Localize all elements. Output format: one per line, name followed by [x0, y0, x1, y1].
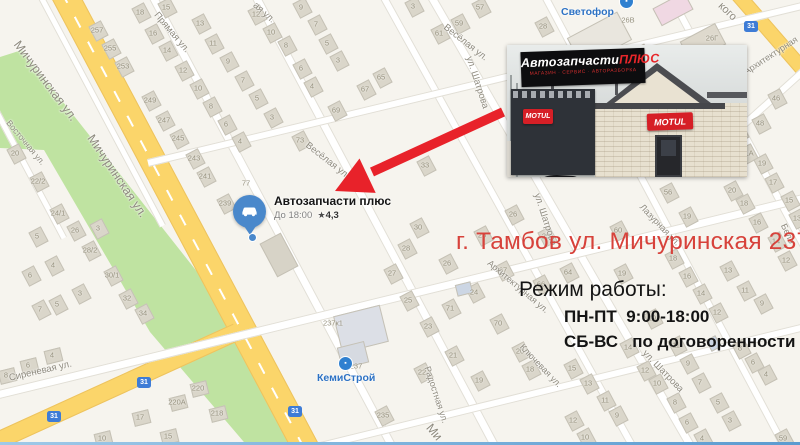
star-icon: ★ — [318, 210, 326, 220]
building-number: 8 — [673, 398, 677, 407]
building-number: 9 — [226, 57, 230, 66]
building-number: 12 — [641, 366, 649, 375]
photo-banner: MOTUL — [511, 89, 595, 175]
building-number: 15 — [164, 432, 172, 441]
building-number: 20 — [11, 149, 19, 158]
car-icon — [240, 202, 259, 221]
building-number: 46 — [772, 94, 780, 103]
poi-label[interactable]: Автозапчасти плюс До 18:00 ★4,3 — [274, 194, 391, 221]
motul-sign-wall: MOTUL — [647, 112, 694, 131]
building-number: 241 — [199, 172, 212, 181]
poi-rating: 4,3 — [326, 210, 339, 221]
building-number: 57 — [476, 3, 484, 12]
motul-logo-banner: MOTUL — [523, 109, 553, 124]
building-number: 24/1 — [51, 209, 66, 218]
poi-location-dot — [248, 233, 257, 242]
building-number: 20 — [728, 186, 736, 195]
building-number: 8 — [209, 102, 213, 111]
building-number: 3 — [270, 113, 274, 122]
building-number: 25 — [404, 296, 412, 305]
building-number: 17 — [136, 413, 144, 422]
road-shield: 31 — [137, 377, 151, 388]
building-number: 9 — [615, 411, 619, 420]
building-number: 12 — [179, 66, 187, 75]
building-number: 26Г — [706, 34, 718, 43]
building-number: 3 — [411, 2, 415, 11]
building-number: 65 — [377, 73, 385, 82]
building-number: 26 — [71, 226, 79, 235]
map-poi-label[interactable]: Светофор — [561, 6, 614, 18]
building-number: 21 — [449, 351, 457, 360]
building-number: 16 — [149, 29, 157, 38]
building-number: 6 — [224, 120, 228, 129]
building-number: 5 — [255, 94, 259, 103]
storefront-photo: АвтозапчастиПЛЮС МАГАЗИН · СЕРВИС · АВТО… — [507, 45, 747, 177]
building-number: 239 — [219, 199, 232, 208]
building-number: 220А — [168, 398, 186, 407]
building-number: 30 — [414, 223, 422, 232]
road-shield: 31 — [744, 21, 758, 32]
address-text: г. Тамбов ул. Мичуринская 237г. — [456, 228, 800, 256]
building-number: 13 — [724, 266, 732, 275]
building-number: 67 — [361, 85, 369, 94]
building-number: 237к1 — [323, 319, 343, 328]
building-number: 18 — [136, 8, 144, 17]
store-sign-title: АвтозапчастиПЛЮС — [521, 52, 645, 70]
building-number: 4 — [764, 370, 768, 379]
building-number: 8 — [4, 371, 8, 380]
building-number: 13 — [793, 214, 800, 223]
building-number: 24 — [470, 288, 478, 297]
building-number: 3 — [78, 289, 82, 298]
building-number: 10 — [267, 28, 275, 37]
building-number: 243 — [188, 154, 201, 163]
building-number: 22/2 — [31, 177, 46, 186]
building-number: 26 — [509, 210, 517, 219]
map-poi-label[interactable]: КемиСтрой — [317, 372, 375, 384]
building-number: 19 — [618, 269, 626, 278]
building-number: 245 — [172, 134, 185, 143]
building-number: 3 — [96, 224, 100, 233]
poi-hours: До 18:00 — [274, 210, 312, 221]
building-number: 28 — [402, 244, 410, 253]
black-car — [513, 167, 593, 177]
building-number: 33 — [421, 161, 429, 170]
door-pane — [661, 140, 676, 156]
poi-pin-circle — [233, 195, 266, 228]
building-number: 19 — [475, 376, 483, 385]
building-number: 5 — [325, 39, 329, 48]
building-number: 17 — [769, 178, 777, 187]
building-number: 26 — [443, 259, 451, 268]
building-number: 73 — [296, 136, 304, 145]
brand-logos-strip — [513, 91, 593, 98]
building-number: 7 — [38, 305, 42, 314]
building-number: 9 — [686, 359, 690, 368]
building-number: 6 — [28, 271, 32, 280]
building-number: 257 — [91, 26, 104, 35]
building-number: 19 — [758, 159, 766, 168]
building-number: 30/1 — [105, 271, 120, 280]
building-number: 4 — [51, 261, 55, 270]
schedule-weekend: СБ-ВС по договоренности — [564, 332, 795, 352]
building-number: 249 — [144, 96, 157, 105]
building-number: 32 — [123, 294, 131, 303]
building-number: 10 — [194, 84, 202, 93]
photo-door — [655, 135, 682, 177]
building-number: 7 — [698, 378, 702, 387]
building-number: 70 — [494, 319, 502, 328]
building-number: 12 — [782, 256, 790, 265]
building-number: 77 — [242, 179, 250, 188]
building-number: 4 — [310, 82, 314, 91]
store-sign: АвтозапчастиПЛЮС МАГАЗИН · СЕРВИС · АВТО… — [520, 48, 645, 87]
building-number: 23 — [424, 322, 432, 331]
building-number: 6 — [751, 358, 755, 367]
building-number: 13 — [196, 19, 204, 28]
building-number: 3 — [336, 56, 340, 65]
building-number: 28/2 — [83, 246, 98, 255]
building-number: 56 — [664, 188, 672, 197]
building-number: 7 — [241, 76, 245, 85]
building-number: 27 — [388, 269, 396, 278]
road-shield: 31 — [288, 406, 302, 417]
building-number: 4 — [50, 351, 54, 360]
building-number: 253 — [117, 62, 130, 71]
building-number: 220 — [192, 384, 205, 393]
building-number: 48 — [756, 119, 764, 128]
sign-accent-text: ПЛЮС — [619, 51, 660, 66]
sign-main-text: Автозапчасти — [521, 53, 620, 70]
building-number: 15 — [785, 196, 793, 205]
map-stage[interactable]: 2572552532492472452432412391816141210864… — [0, 0, 800, 445]
building-number: 16 — [753, 218, 761, 227]
building-number: 19 — [683, 212, 691, 221]
building-number: 235 — [377, 411, 390, 420]
building-number: 5 — [55, 300, 59, 309]
building-number: 15 — [162, 3, 170, 12]
building-number: 14 — [163, 46, 171, 55]
building-number: 8 — [284, 41, 288, 50]
schedule-title: Режим работы: — [519, 278, 795, 302]
building-number: 247 — [158, 116, 171, 125]
building-number: 6 — [299, 64, 303, 73]
building-number: 15 — [568, 364, 576, 373]
building-number: 5 — [35, 232, 39, 241]
building-number: 13 — [584, 379, 592, 388]
poi-name: Автозапчасти плюс — [274, 194, 391, 208]
building-number: 9 — [299, 3, 303, 12]
building-number: 11 — [209, 39, 217, 48]
building-number: 34 — [139, 309, 147, 318]
poi-pin[interactable] — [233, 195, 266, 228]
building-number: 18 — [740, 199, 748, 208]
building-number: 18 — [526, 365, 534, 374]
building-number: 7 — [314, 20, 318, 29]
schedule-block: Режим работы: ПН-ПТ 9:00-18:00 СБ-ВС по … — [519, 278, 795, 352]
building-number: 5 — [716, 398, 720, 407]
poi-hours-rating: До 18:00 ★4,3 — [274, 210, 391, 221]
building-number: 64 — [564, 268, 572, 277]
building-number: 26В — [621, 16, 634, 25]
map-poi-icon[interactable]: ▪ — [338, 356, 353, 371]
building-number: 71 — [446, 304, 454, 313]
building-number: 218 — [211, 409, 224, 418]
building-number: 59 — [455, 19, 463, 28]
building-number: 10 — [653, 379, 661, 388]
building-number: 6 — [685, 418, 689, 427]
building-number: 10 — [581, 433, 589, 442]
building-number: 11 — [601, 396, 609, 405]
building-number: 28 — [539, 22, 547, 31]
building-number: 3 — [728, 416, 732, 425]
building-number: 4 — [238, 137, 242, 146]
building-number: 12 — [569, 416, 577, 425]
schedule-weekdays: ПН-ПТ 9:00-18:00 — [564, 307, 795, 327]
building-number: 255 — [104, 44, 117, 53]
building-number: 69 — [332, 106, 340, 115]
road-shield: 31 — [47, 411, 61, 422]
